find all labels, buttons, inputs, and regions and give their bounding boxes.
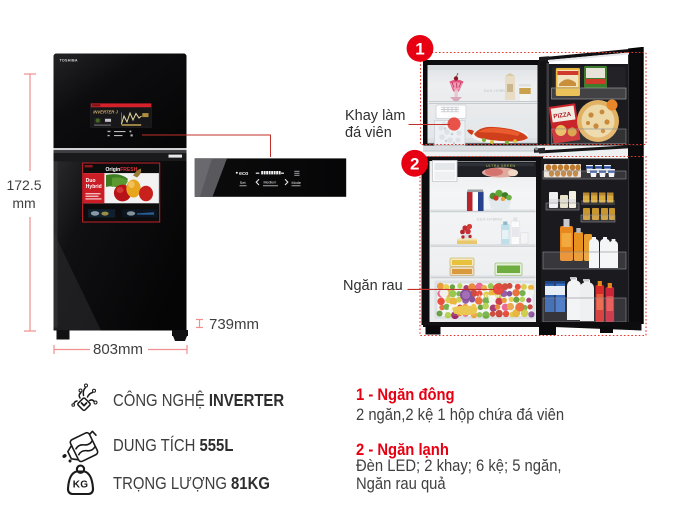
svg-text:OriginFRESH: OriginFRESH (106, 167, 138, 173)
svg-text:TOSHIBA: TOSHIBA (60, 58, 78, 62)
svg-text:Duo: Duo (86, 178, 96, 184)
svg-text:Medium: Medium (264, 181, 277, 185)
svg-text:KG: KG (73, 480, 89, 491)
svg-text:Mode: Mode (292, 181, 302, 185)
svg-text:eco: eco (239, 171, 249, 177)
svg-text:INVERTER J: INVERTER J (93, 110, 118, 115)
svg-text:Set: Set (240, 181, 247, 185)
svg-text:DUO HYBRID: DUO HYBRID (477, 218, 502, 222)
svg-text:2: 2 (410, 154, 419, 173)
svg-text:Hybrid: Hybrid (86, 184, 102, 190)
svg-text:1: 1 (415, 40, 424, 59)
svg-text:Ag Crisper: Ag Crisper (478, 294, 500, 299)
